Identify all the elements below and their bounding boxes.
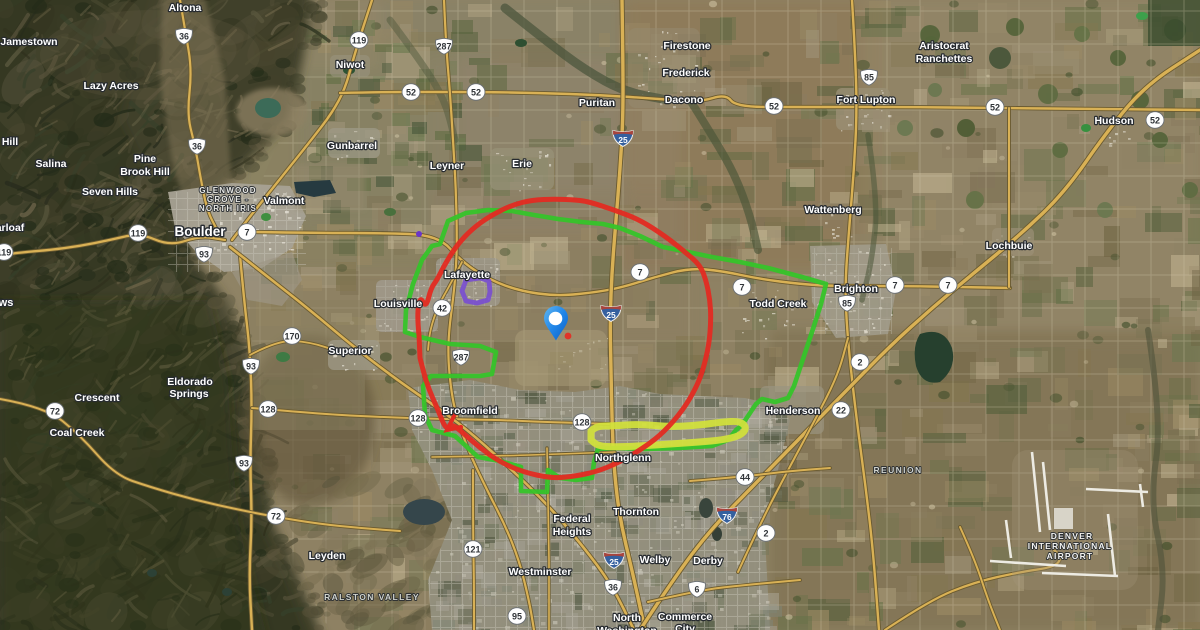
svg-text:Fort Lupton: Fort Lupton [837,94,896,106]
svg-text:Firestone: Firestone [663,40,710,52]
svg-text:Northglenn: Northglenn [595,452,651,464]
svg-text:Thornton: Thornton [613,506,659,518]
svg-text:Crescent: Crescent [75,392,120,404]
svg-text:Superior: Superior [328,345,371,357]
svg-text:arloaf: arloaf [0,222,25,234]
svg-text:2: 2 [763,528,768,538]
svg-text:Louisville: Louisville [374,298,423,310]
svg-text:Leyner: Leyner [430,160,464,172]
svg-text:Puritan: Puritan [579,97,615,109]
svg-text:Brook Hill: Brook Hill [120,166,170,178]
svg-text:Washington: Washington [597,625,657,630]
svg-text:City: City [675,623,695,630]
svg-text:7: 7 [892,280,897,290]
svg-text:Welby: Welby [640,554,671,566]
svg-text:Brighton: Brighton [834,283,878,295]
svg-text:Jamestown: Jamestown [0,36,57,48]
svg-text:52: 52 [769,101,779,111]
svg-text:Springs: Springs [169,388,208,400]
svg-text:Henderson: Henderson [766,405,821,417]
svg-text:Heights: Heights [553,526,592,538]
svg-text:DENVER: DENVER [1051,531,1094,541]
svg-text:Pine: Pine [134,153,156,165]
svg-text:7: 7 [637,267,642,277]
svg-text:52: 52 [406,87,416,97]
svg-text:Todd Creek: Todd Creek [750,298,807,310]
svg-text:NORTH IRIS: NORTH IRIS [199,204,257,213]
svg-text:170: 170 [284,331,299,341]
svg-text:22: 22 [836,405,846,415]
svg-text:ws: ws [0,297,13,309]
svg-text:Ranchettes: Ranchettes [916,53,973,65]
svg-text:Wattenberg: Wattenberg [804,204,861,216]
svg-text:25: 25 [609,557,619,567]
svg-text:Hudson: Hudson [1094,115,1133,127]
svg-text:85: 85 [842,298,852,308]
svg-text:287: 287 [454,352,469,362]
svg-text:INTERNATIONAL: INTERNATIONAL [1028,541,1112,551]
svg-text:REUNION: REUNION [874,465,923,475]
svg-text:6: 6 [695,584,700,594]
svg-text:Commerce: Commerce [658,611,712,623]
svg-text:Lafayette: Lafayette [444,269,490,281]
svg-text:RALSTON VALLEY: RALSTON VALLEY [324,592,420,602]
svg-text:GLENWOOD: GLENWOOD [199,186,257,195]
svg-text:Broomfield: Broomfield [442,405,497,417]
svg-text:Derby: Derby [693,555,723,567]
svg-text:7: 7 [945,280,950,290]
svg-text:Seven Hills: Seven Hills [82,186,138,198]
svg-text:GROVE -: GROVE - [207,195,249,204]
svg-text:2: 2 [857,357,862,367]
svg-text:36: 36 [608,582,618,592]
svg-text:52: 52 [471,87,481,97]
svg-text:7: 7 [244,227,249,237]
svg-text:76: 76 [722,512,732,522]
svg-text:287: 287 [437,41,452,51]
svg-text:7: 7 [739,282,744,292]
svg-text:25: 25 [606,310,616,320]
svg-text:Boulder: Boulder [174,224,226,239]
svg-text:128: 128 [410,413,425,423]
svg-text:93: 93 [199,249,209,259]
svg-text:36: 36 [179,31,189,41]
svg-text:42: 42 [437,303,447,313]
svg-text:44: 44 [740,472,750,482]
svg-text:Valmont: Valmont [264,195,305,207]
svg-text:85: 85 [864,72,874,82]
svg-text:Hill: Hill [2,136,18,148]
svg-text:Niwot: Niwot [336,59,365,71]
svg-text:Lazy Acres: Lazy Acres [83,80,138,92]
svg-text:Lochbuie: Lochbuie [986,240,1033,252]
svg-text:119: 119 [352,35,367,45]
svg-text:128: 128 [574,417,589,427]
svg-text:95: 95 [512,611,522,621]
svg-text:72: 72 [50,406,60,416]
svg-text:119: 119 [131,228,146,238]
svg-text:119: 119 [0,247,11,257]
svg-text:Federal: Federal [553,513,590,525]
svg-text:128: 128 [260,404,275,414]
svg-text:North: North [613,612,641,624]
svg-text:Dacono: Dacono [665,94,704,106]
svg-text:Erie: Erie [512,158,532,170]
svg-text:52: 52 [990,102,1000,112]
svg-text:25: 25 [618,135,628,145]
svg-text:AIRPORT: AIRPORT [1047,551,1094,561]
svg-text:Frederick: Frederick [662,67,709,79]
svg-text:93: 93 [246,361,256,371]
svg-text:Leyden: Leyden [309,550,346,562]
svg-text:Aristocrat: Aristocrat [919,40,969,52]
svg-text:Coal Creek: Coal Creek [50,427,105,439]
svg-text:Salina: Salina [36,158,67,170]
svg-text:Eldorado: Eldorado [167,376,213,388]
svg-text:52: 52 [1150,115,1160,125]
svg-text:Altona: Altona [169,2,202,14]
svg-text:72: 72 [271,511,281,521]
svg-text:Westminster: Westminster [509,566,572,578]
svg-text:Gunbarrel: Gunbarrel [327,140,377,152]
svg-text:93: 93 [239,458,249,468]
svg-text:121: 121 [465,544,480,554]
svg-text:36: 36 [192,141,202,151]
